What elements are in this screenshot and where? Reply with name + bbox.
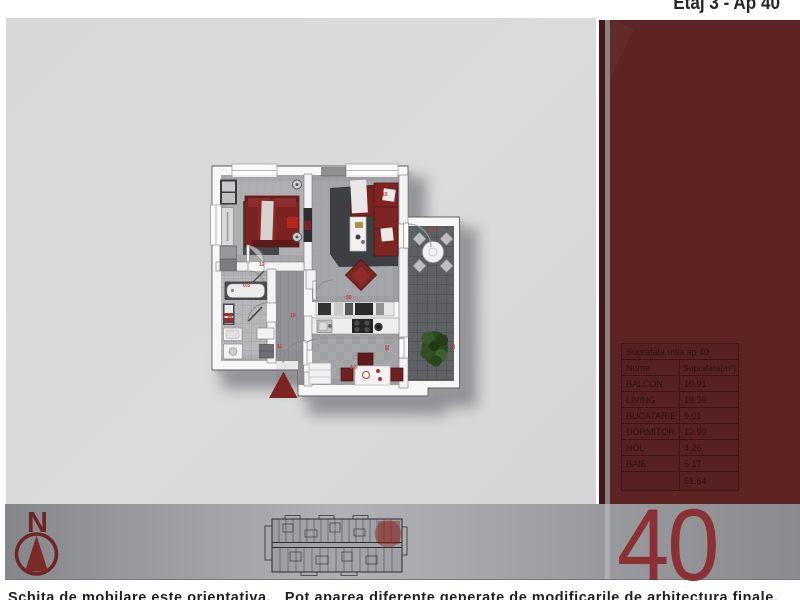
svg-text:15: 15 — [449, 344, 455, 350]
svg-text:55: 55 — [346, 295, 352, 301]
svg-text:66: 66 — [226, 313, 232, 319]
svg-text:15: 15 — [429, 227, 435, 233]
svg-text:3.8: 3.8 — [350, 365, 357, 371]
svg-text:15: 15 — [382, 192, 388, 198]
svg-text:11: 11 — [277, 344, 283, 350]
svg-text:10: 10 — [290, 313, 296, 319]
svg-text:12: 12 — [259, 262, 265, 268]
svg-text:0.5: 0.5 — [243, 283, 250, 289]
svg-text:26: 26 — [383, 345, 389, 351]
